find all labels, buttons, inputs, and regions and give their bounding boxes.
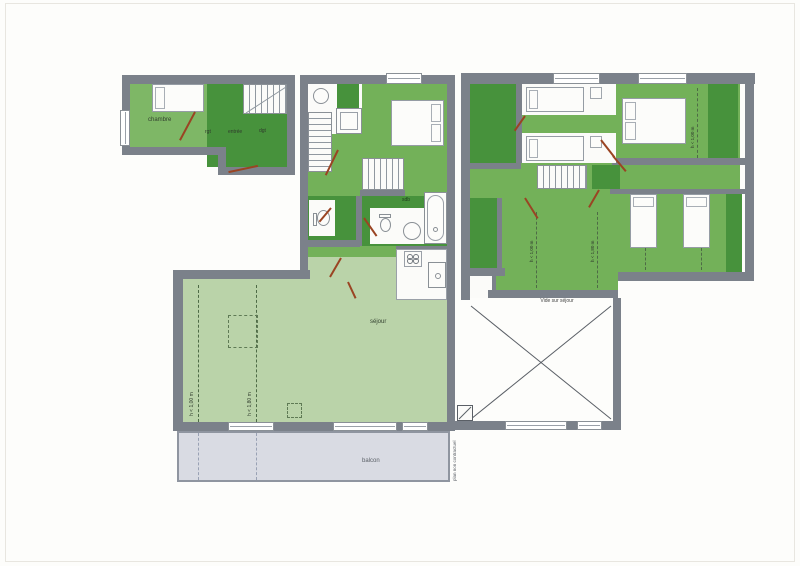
height-limit-line <box>697 88 698 158</box>
pillow <box>625 102 636 120</box>
void-cross <box>461 303 613 421</box>
roof-window-outline <box>228 315 258 348</box>
wall <box>122 75 295 84</box>
closet-bottom-left <box>470 198 497 268</box>
pillow <box>431 124 441 142</box>
stairs-quarter-turn <box>243 84 287 114</box>
pillow <box>633 197 654 207</box>
burner <box>413 258 419 264</box>
wall <box>287 75 295 175</box>
room-sejour-floor-upper <box>308 257 396 279</box>
wall <box>612 158 745 165</box>
nightstand <box>590 136 602 148</box>
stairs-to-upper <box>308 112 332 172</box>
room-label-chambre: chambre <box>148 117 171 124</box>
washbasin <box>313 88 329 104</box>
wall <box>618 272 754 281</box>
window <box>638 73 687 84</box>
roof-window-outline <box>287 403 302 418</box>
height-annotation: h < 1,00 m <box>530 241 535 262</box>
bathtub-inner <box>427 195 444 241</box>
wall <box>300 240 360 247</box>
closet-top-left <box>470 84 516 163</box>
single-bed <box>526 136 584 161</box>
stairs-to-lower <box>362 158 404 190</box>
wall <box>447 75 455 430</box>
toilet-bowl <box>380 218 391 232</box>
bathtub <box>424 192 447 244</box>
pillow <box>529 139 538 158</box>
pillow <box>625 122 636 140</box>
room-label-balcon: balcon <box>362 458 380 465</box>
balcony-floor <box>177 431 450 482</box>
disclaimer-text: plan non contractuel <box>453 440 458 481</box>
height-annotation: h < 1,00 m <box>691 127 696 148</box>
room-label-entree: entrée <box>228 130 242 136</box>
cooktop <box>404 251 422 267</box>
closet-bottom-right <box>726 194 742 272</box>
window <box>120 110 130 146</box>
window <box>333 422 397 431</box>
closet-top-right <box>708 84 738 158</box>
stairs-upper <box>537 165 587 189</box>
room-label-sdb: sdb <box>402 198 410 204</box>
wall <box>173 270 310 279</box>
fridge-detail <box>435 273 441 279</box>
pillow <box>529 90 538 109</box>
room-label-degagement: dgt <box>259 129 266 135</box>
double-bed <box>391 100 444 146</box>
wall <box>300 75 308 279</box>
height-limit-line <box>536 212 537 288</box>
single-bed <box>152 84 204 112</box>
bathtub-drain <box>433 227 438 232</box>
window <box>505 421 567 430</box>
window <box>386 73 422 84</box>
nightstand <box>590 87 602 99</box>
window <box>228 422 274 431</box>
pillow <box>431 104 441 122</box>
chimney <box>457 405 473 421</box>
fridge <box>428 262 446 288</box>
upper-floor-base-low <box>495 274 618 290</box>
wall <box>497 198 502 268</box>
pillow <box>686 197 707 207</box>
single-bed <box>630 194 657 248</box>
height-limit-line <box>198 433 199 480</box>
window <box>577 421 602 430</box>
wall <box>461 73 470 300</box>
wall <box>613 298 621 430</box>
wall <box>461 163 521 169</box>
room-label-sejour: séjour <box>370 319 386 326</box>
wall <box>300 75 455 84</box>
wc-upper-closet <box>337 84 359 108</box>
height-limit-line <box>198 285 199 422</box>
double-bed <box>622 98 686 144</box>
height-limit-line <box>256 285 257 422</box>
wall <box>461 268 505 276</box>
closet-by-stairs <box>592 165 620 189</box>
washbasin <box>403 222 421 240</box>
height-annotation: h < 1,80 m <box>248 392 254 416</box>
height-limit-line <box>701 248 702 270</box>
pillow <box>155 87 165 109</box>
wall <box>122 147 226 155</box>
single-bed <box>683 194 710 248</box>
shower <box>336 108 362 134</box>
floorplan-canvas: chambre rgt entrée dgt <box>0 0 800 566</box>
height-limit-line <box>256 433 257 480</box>
height-limit-line <box>597 212 598 288</box>
wall <box>461 73 755 84</box>
height-limit-line <box>645 248 646 270</box>
height-annotation: h < 1,00 m <box>190 392 196 416</box>
wall <box>745 73 754 281</box>
room-label-rangement: rgt <box>205 130 211 136</box>
room-sejour-floor <box>183 279 447 422</box>
wall <box>173 270 183 431</box>
window <box>402 422 428 431</box>
wall <box>488 290 618 298</box>
height-annotation: h < 1,80 m <box>591 241 596 262</box>
window <box>553 73 600 84</box>
single-bed <box>526 87 584 112</box>
